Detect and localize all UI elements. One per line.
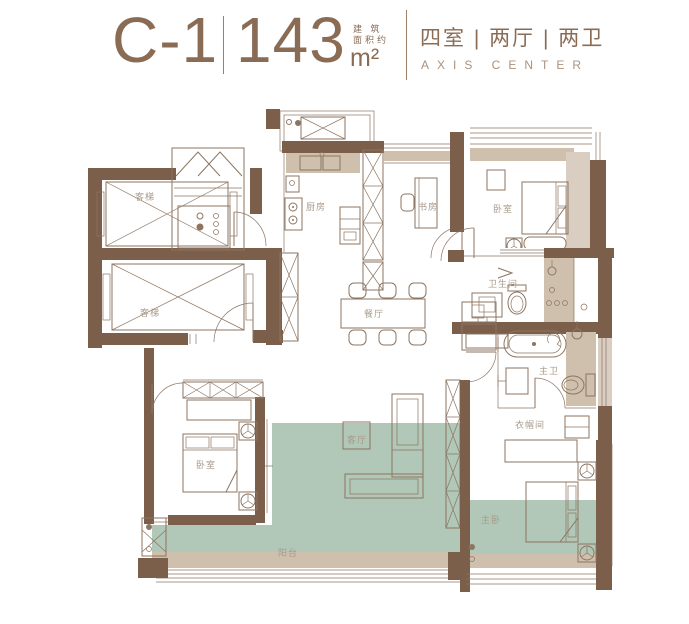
dining-label: 餐厅 xyxy=(364,308,384,319)
bathroom-label: 卫生间 xyxy=(488,278,518,289)
shaft-column xyxy=(363,143,383,290)
dining: 餐厅 xyxy=(341,283,426,345)
study-label: 书房 xyxy=(418,201,438,212)
balcony-label: 阳台 xyxy=(278,547,298,558)
floorplan-drawing: 客梯 客梯 xyxy=(0,0,689,624)
elevator-top-label: 客梯 xyxy=(135,191,155,202)
floor-overlays xyxy=(152,423,596,568)
living-label: 客厅 xyxy=(347,434,367,445)
master-bath-label: 主卫 xyxy=(539,365,559,376)
bedroom-top: 卧室 xyxy=(441,128,606,262)
master-entry xyxy=(462,302,498,382)
kitchen-label: 厨房 xyxy=(306,201,326,212)
bedroom-left-label: 卧室 xyxy=(196,459,216,470)
master-bedroom-label: 主卧 xyxy=(481,514,501,525)
cloakroom-label: 衣帽间 xyxy=(515,419,545,430)
cloakroom: 衣帽间 xyxy=(505,416,589,462)
floorplan-page: C-1 143 建 筑 面积约 m² 四室 | 两厅 | 两卫 AXIS CEN… xyxy=(0,0,689,624)
elevator-bottom-label: 客梯 xyxy=(140,307,160,318)
bedroom-left: 卧室 xyxy=(144,348,265,525)
bedroom-top-label: 卧室 xyxy=(493,203,513,214)
elevator-lobby: 客梯 客梯 xyxy=(88,148,298,348)
